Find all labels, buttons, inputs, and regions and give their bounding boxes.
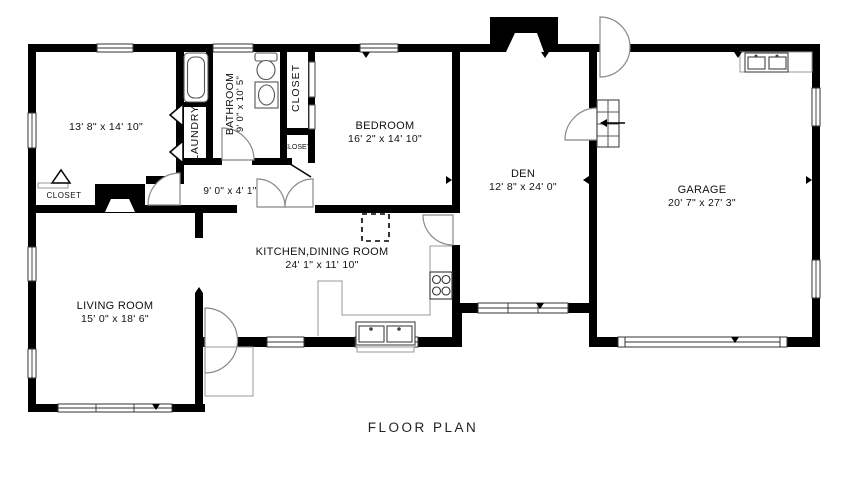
bathtub <box>184 53 208 102</box>
living-closet-name: CLOSET <box>38 191 90 200</box>
title-text: FLOOR PLAN <box>323 420 523 436</box>
window-bedroom2-left <box>28 113 36 148</box>
living-room-label: LIVING ROOM 15' 0" x 18' 6" <box>45 300 185 325</box>
hallway-dims: 9' 0" x 4' 1" <box>180 186 280 198</box>
fireplace-living-room <box>95 184 145 212</box>
garage-dims: 20' 7" x 27' 3" <box>632 197 772 209</box>
window-den-bottom-triple <box>478 303 568 313</box>
kitchen-name: KITCHEN,DINING ROOM <box>222 246 422 259</box>
window-garage-right-lower <box>812 260 820 298</box>
window-bedroom-top <box>360 44 398 52</box>
kitchen-sink <box>356 322 415 352</box>
page-title: FLOOR PLAN <box>323 420 523 436</box>
garage-name: GARAGE <box>632 184 772 197</box>
wall-den-garage-divider-upper <box>589 44 597 108</box>
garage-steps <box>597 100 625 147</box>
attic-access-dashed <box>362 214 389 241</box>
kitchen-dims: 24' 1" x 11' 10" <box>222 259 422 271</box>
door-kitchen-den <box>423 215 453 245</box>
floor-plan: 13' 8" x 14' 10" LAUNDRY BATHROOM 9' 0" … <box>0 0 849 479</box>
living-room-name: LIVING ROOM <box>45 300 185 313</box>
fireplace-den <box>490 17 558 52</box>
walls <box>28 44 820 412</box>
den-label: DEN 12' 8" x 24' 0" <box>453 168 593 193</box>
wall-livingroom-right-lower <box>195 293 203 412</box>
living-closet <box>38 170 70 188</box>
small-closet-label: CLOSET <box>280 144 314 152</box>
window-livingroom-left-upper <box>28 247 36 281</box>
bathroom-label: BATHROOM 9' 0" x 10' 5" <box>224 62 252 146</box>
window-livingroom-left-lower <box>28 349 36 378</box>
bedroom-name: BEDROOM <box>315 120 455 133</box>
door-livingroom-entry <box>205 308 238 373</box>
wall-bedroom-bottom-1 <box>176 205 237 213</box>
den-dims: 12' 8" x 24' 0" <box>453 181 593 193</box>
wall-bedroom-bottom-2 <box>315 205 452 213</box>
stove <box>430 272 452 299</box>
living-room-dims: 15' 0" x 18' 6" <box>45 313 185 325</box>
hall-closet-label: CLOSET <box>290 60 304 116</box>
window-bedroom2-top <box>97 44 133 52</box>
kitchen-label: KITCHEN,DINING ROOM 24' 1" x 11' 10" <box>222 246 422 271</box>
bedroom-dims: 16' 2" x 14' 10" <box>315 133 455 145</box>
window-garage-right-upper <box>812 88 820 126</box>
window-kitchen-bottom <box>267 337 304 347</box>
door-den-garage <box>565 108 597 140</box>
bathroom-sink-vanity <box>255 82 278 108</box>
laundry-label: LAUNDRY <box>189 98 205 168</box>
door-bedroom <box>285 179 313 207</box>
bedroom2-dims: 13' 8" x 14' 10" <box>40 121 172 133</box>
hall-closet-name: CLOSET <box>290 60 302 116</box>
small-closet-name: CLOSET <box>280 144 314 152</box>
garage-label: GARAGE 20' 7" x 27' 3" <box>632 184 772 209</box>
floor-plan-drawing <box>0 0 849 479</box>
toilet <box>255 53 277 80</box>
closet-sliding-panels <box>309 62 315 129</box>
laundry-name: LAUNDRY <box>189 98 201 168</box>
hallway-label: 9' 0" x 4' 1" <box>180 186 280 198</box>
closet-bifold-door <box>52 170 70 183</box>
bedroom-label: BEDROOM 16' 2" x 14' 10" <box>315 120 455 145</box>
den-name: DEN <box>453 168 593 181</box>
wall-top <box>28 44 820 52</box>
wall-den-left-lower <box>452 245 460 303</box>
window-bathroom-top <box>213 44 253 52</box>
door-garage-entry-top <box>600 17 630 77</box>
living-closet-label: CLOSET <box>38 191 90 200</box>
garage-door <box>618 337 787 347</box>
small-closet-door <box>287 162 311 177</box>
garage-sink <box>740 52 812 72</box>
bathroom-dims: 9' 0" x 10' 5" <box>236 62 247 146</box>
bedroom2-label: 13' 8" x 14' 10" <box>40 121 172 133</box>
wall-bathroom-bottom-2 <box>252 158 280 165</box>
